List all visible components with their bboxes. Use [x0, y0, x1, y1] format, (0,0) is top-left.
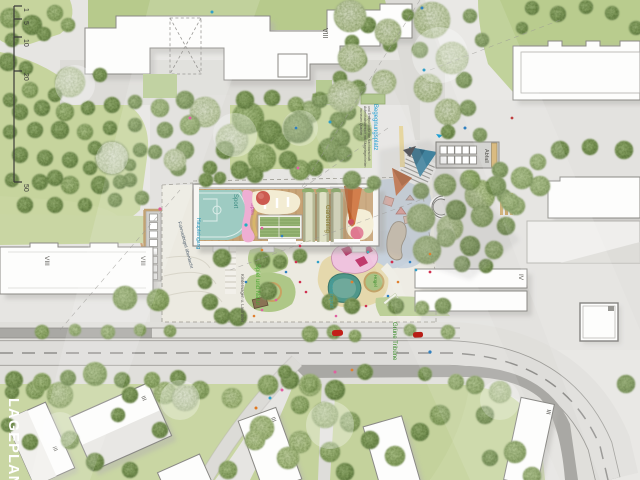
- svg-text:Hügel: Hügel: [373, 275, 378, 287]
- svg-text:Sport: Sport: [232, 194, 238, 209]
- svg-text:Begegnungsplatz: Begegnungsplatz: [372, 104, 378, 150]
- svg-text:Spiel und Natur: Spiel und Natur: [254, 264, 260, 305]
- svg-text:im neuen Quartier: im neuen Quartier: [359, 108, 363, 136]
- svg-text:Grüne Tribüne: Grüne Tribüne: [391, 322, 397, 361]
- svg-text:Wasserspiel: Wasserspiel: [328, 278, 334, 308]
- svg-text:10: 10: [22, 39, 29, 47]
- svg-text:LAGEPLAN: LAGEPLAN: [5, 398, 21, 480]
- svg-text:und Treffpunkt für die Nachbar: und Treffpunkt für die Nachbarschaft: [367, 106, 371, 161]
- svg-text:VIII: VIII: [321, 28, 328, 39]
- svg-text:5: 5: [22, 21, 29, 25]
- svg-text:50: 50: [22, 184, 29, 192]
- svg-text:Abfall: Abfall: [483, 149, 489, 163]
- svg-text:VIII: VIII: [43, 256, 50, 266]
- svg-text:1: 1: [22, 8, 29, 12]
- svg-text:Haupteingang: Haupteingang: [195, 218, 201, 249]
- svg-text:Gardening: Gardening: [324, 205, 330, 233]
- svg-text:20: 20: [22, 73, 29, 81]
- svg-text:IV: IV: [517, 274, 524, 281]
- svg-text:Kinderwagen u. Laufräder: Kinderwagen u. Laufräder: [240, 274, 245, 323]
